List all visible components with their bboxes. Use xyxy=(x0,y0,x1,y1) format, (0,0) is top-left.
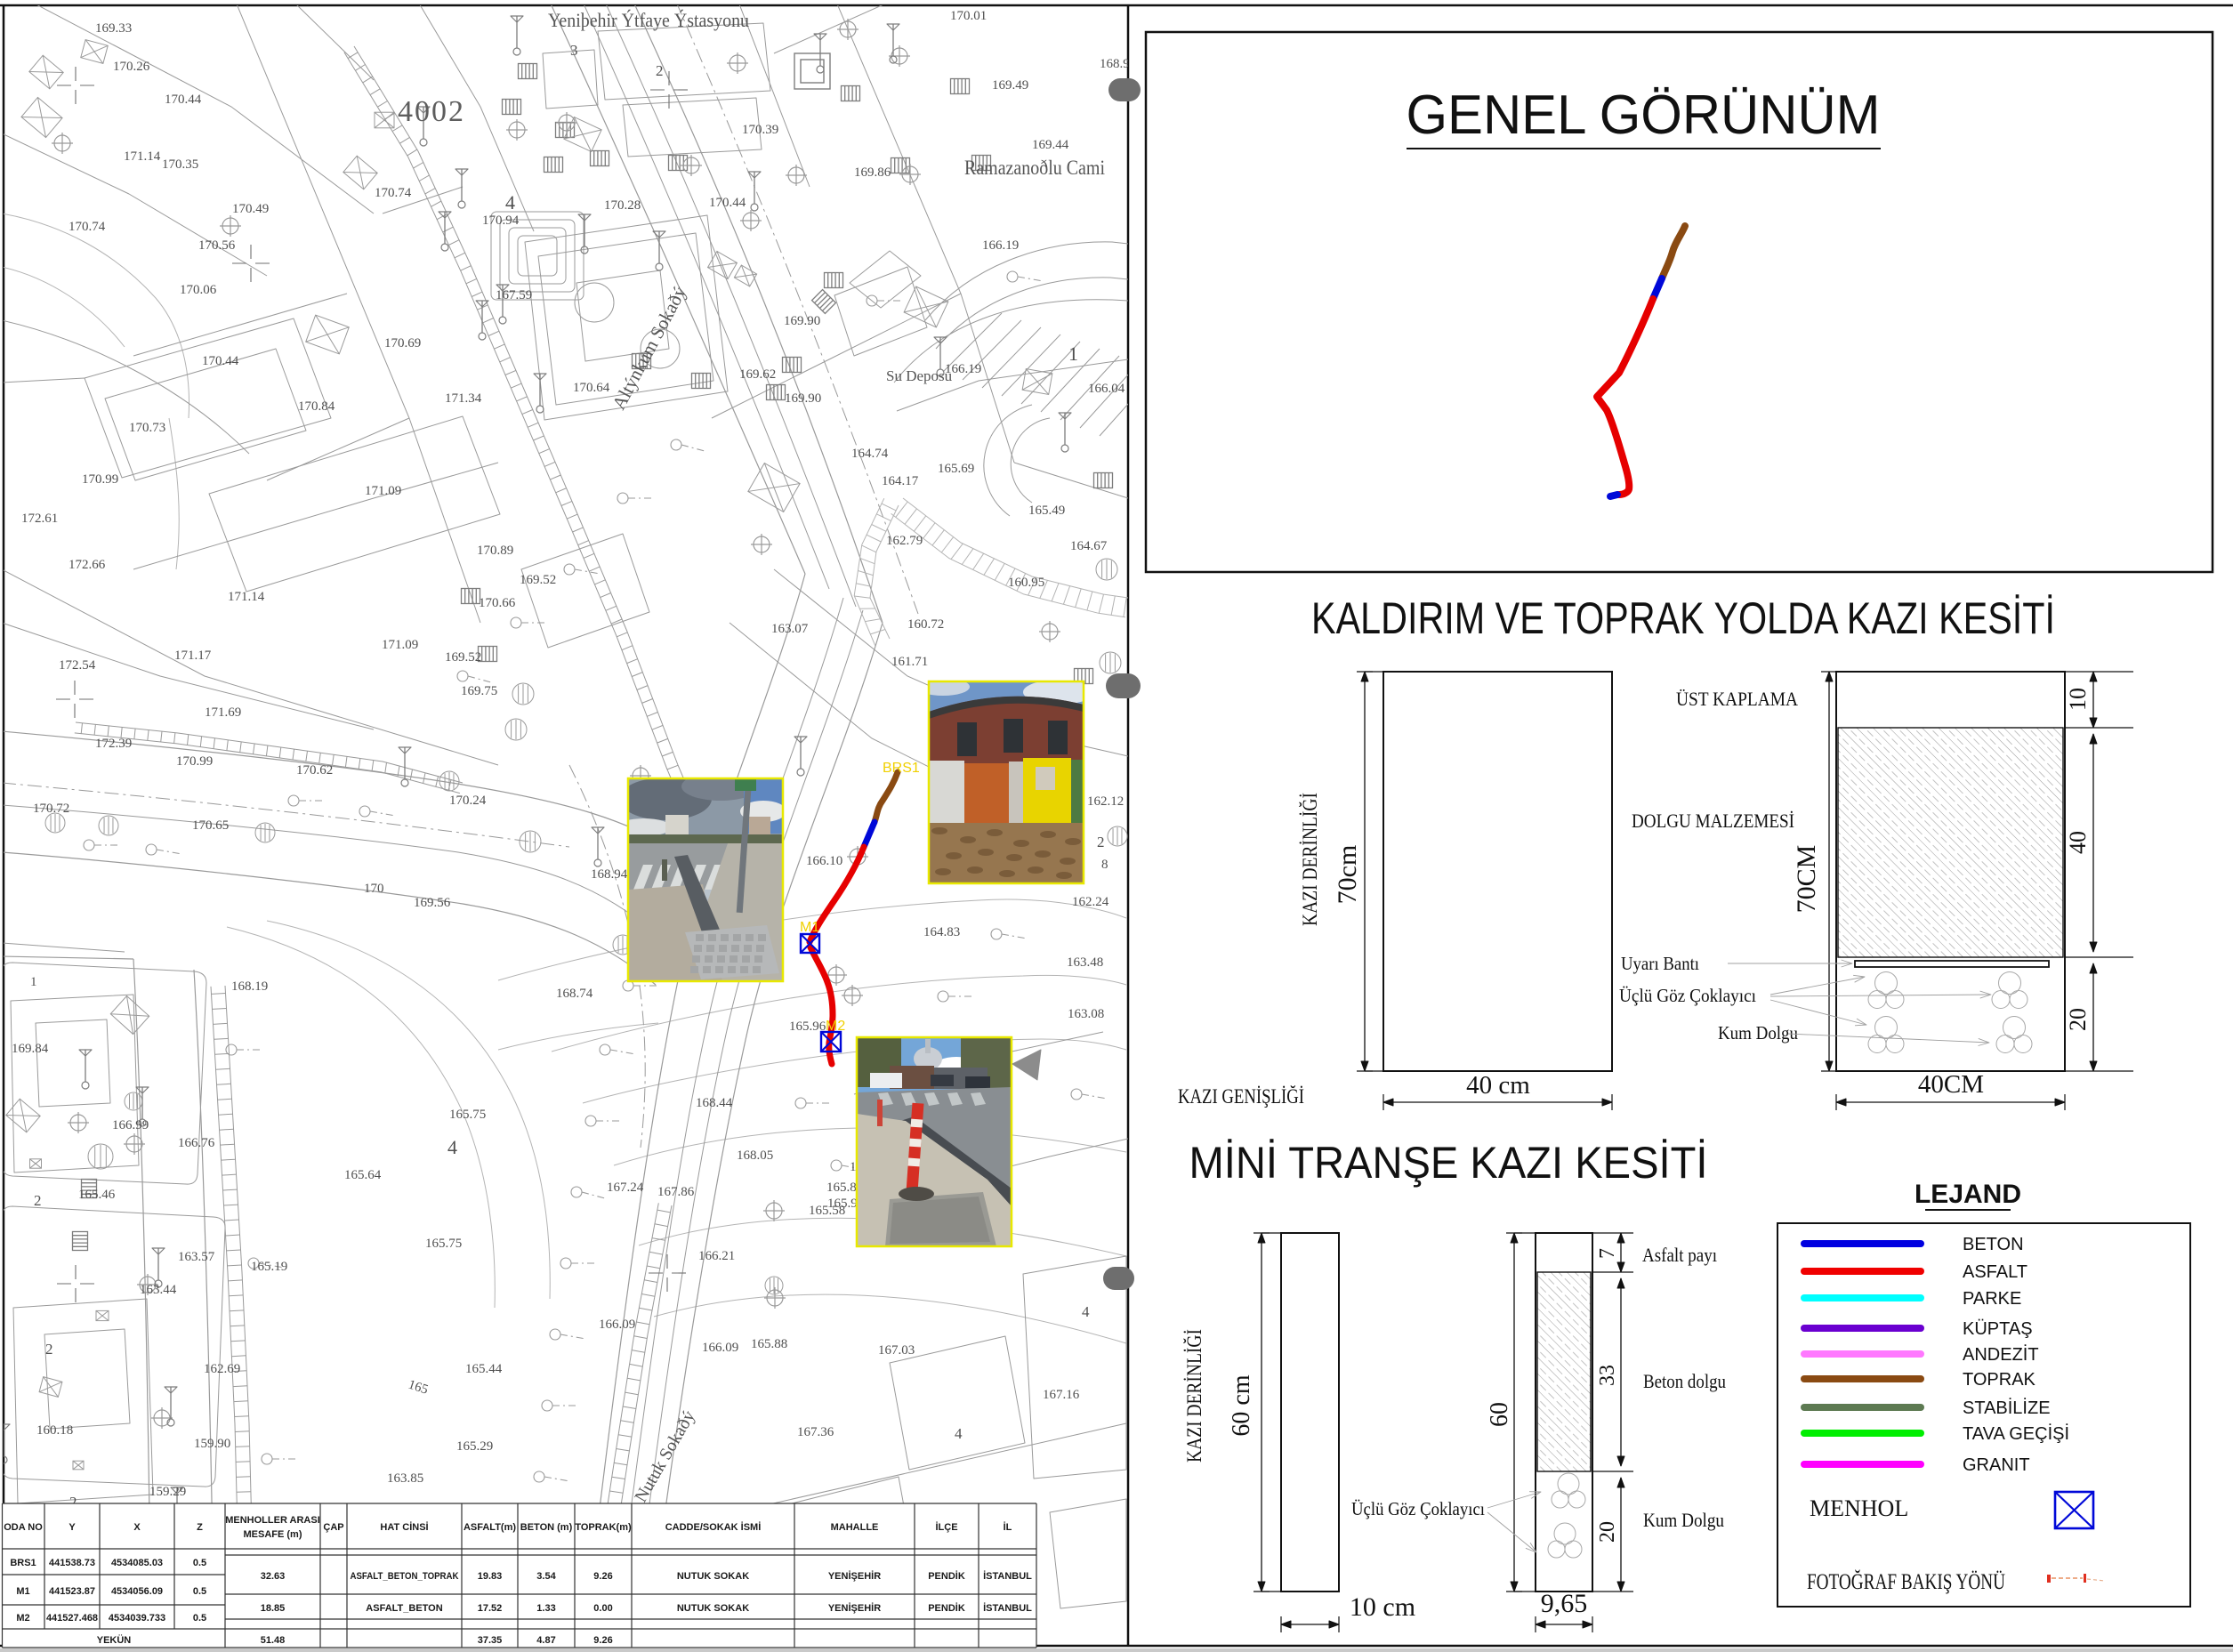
svg-text:17.52: 17.52 xyxy=(478,1603,503,1614)
svg-text:169.44: 169.44 xyxy=(1032,138,1069,152)
svg-text:MİNİ TRANŞE KAZI KESİTİ: MİNİ TRANŞE KAZI KESİTİ xyxy=(1189,1138,1708,1188)
svg-text:167.36: 167.36 xyxy=(797,1425,834,1439)
svg-text:170.72: 170.72 xyxy=(33,802,69,816)
svg-text:STABİLİZE: STABİLİZE xyxy=(1963,1398,2051,1418)
svg-text:169.52: 169.52 xyxy=(445,650,481,665)
svg-text:2: 2 xyxy=(45,1341,53,1358)
svg-text:169.49: 169.49 xyxy=(992,78,1028,93)
svg-text:165.64: 165.64 xyxy=(344,1168,382,1182)
svg-text:ODA NO: ODA NO xyxy=(4,1522,43,1533)
svg-text:9.26: 9.26 xyxy=(593,1635,612,1646)
svg-text:1.33: 1.33 xyxy=(536,1603,555,1614)
svg-text:KÜPTAŞ: KÜPTAŞ xyxy=(1963,1319,2033,1339)
svg-text:NUTUK SOKAK: NUTUK SOKAK xyxy=(677,1571,749,1582)
svg-text:163.85: 163.85 xyxy=(387,1471,423,1486)
svg-text:170.49: 170.49 xyxy=(232,202,269,216)
svg-text:0.5: 0.5 xyxy=(193,1558,206,1568)
svg-text:169.62: 169.62 xyxy=(739,367,776,382)
svg-text:DOLGU MALZEMESİ: DOLGU MALZEMESİ xyxy=(1632,810,1794,832)
svg-text:170.66: 170.66 xyxy=(479,596,516,610)
svg-text:163.57: 163.57 xyxy=(178,1250,215,1264)
svg-text:170.44: 170.44 xyxy=(202,354,239,368)
svg-text:162.12: 162.12 xyxy=(1087,794,1124,809)
svg-text:Z: Z xyxy=(197,1522,203,1533)
svg-text:9,65: 9,65 xyxy=(1541,1589,1588,1618)
svg-text:Ramazanoðlu Cami: Ramazanoðlu Cami xyxy=(964,157,1105,179)
svg-text:165.46: 165.46 xyxy=(78,1188,116,1202)
svg-text:441523.87: 441523.87 xyxy=(49,1586,95,1597)
svg-text:0.00: 0.00 xyxy=(593,1603,612,1614)
svg-text:167.03: 167.03 xyxy=(878,1343,915,1358)
svg-text:TAVA GEÇİŞİ: TAVA GEÇİŞİ xyxy=(1963,1423,2069,1444)
svg-text:164.67: 164.67 xyxy=(1070,539,1108,553)
svg-text:170.84: 170.84 xyxy=(298,399,335,414)
svg-text:GENEL GÖRÜNÜM: GENEL GÖRÜNÜM xyxy=(1407,85,1881,146)
svg-text:160.95: 160.95 xyxy=(1008,576,1044,590)
svg-text:NUTUK SOKAK: NUTUK SOKAK xyxy=(677,1603,749,1614)
svg-text:172.39: 172.39 xyxy=(95,737,132,751)
svg-text:165.44: 165.44 xyxy=(465,1362,503,1376)
svg-text:2: 2 xyxy=(34,1192,42,1209)
svg-text:YEKÜN: YEKÜN xyxy=(97,1634,132,1646)
svg-text:MESAFE (m): MESAFE (m) xyxy=(244,1529,302,1540)
svg-text:166.04: 166.04 xyxy=(1088,382,1125,396)
svg-text:PENDİK: PENDİK xyxy=(928,1570,965,1582)
svg-text:40CM: 40CM xyxy=(1918,1070,1984,1099)
svg-text:172.66: 172.66 xyxy=(69,558,106,572)
svg-text:170.39: 170.39 xyxy=(742,123,778,137)
svg-text:4.87: 4.87 xyxy=(536,1635,555,1646)
svg-text:YENİŞEHİR: YENİŞEHİR xyxy=(828,1602,881,1614)
svg-text:4: 4 xyxy=(1082,1303,1090,1320)
svg-text:441527.468: 441527.468 xyxy=(46,1613,98,1624)
svg-text:162.69: 162.69 xyxy=(204,1362,240,1376)
svg-text:Uyarı Bantı: Uyarı Bantı xyxy=(1621,953,1699,974)
svg-text:159.29: 159.29 xyxy=(149,1485,186,1499)
svg-text:18.85: 18.85 xyxy=(261,1603,286,1614)
svg-text:165.29: 165.29 xyxy=(456,1439,493,1454)
svg-text:40: 40 xyxy=(2065,831,2091,854)
svg-text:166.99: 166.99 xyxy=(112,1118,149,1132)
svg-text:60 cm: 60 cm xyxy=(1228,1374,1255,1436)
svg-text:10 cm: 10 cm xyxy=(1350,1592,1415,1622)
svg-text:3.54: 3.54 xyxy=(536,1571,556,1582)
svg-text:7: 7 xyxy=(1596,1248,1619,1259)
svg-text:Üçlü Göz Çoklayıcı: Üçlü Göz Çoklayıcı xyxy=(1351,1498,1485,1519)
svg-text:169.86: 169.86 xyxy=(854,165,891,180)
svg-text:167.16: 167.16 xyxy=(1043,1388,1080,1402)
svg-text:170: 170 xyxy=(364,882,384,896)
svg-text:4534039.733: 4534039.733 xyxy=(109,1613,165,1624)
svg-text:M2: M2 xyxy=(826,1019,845,1034)
svg-text:164.17: 164.17 xyxy=(882,474,919,488)
svg-text:163.07: 163.07 xyxy=(771,622,809,636)
svg-text:165.49: 165.49 xyxy=(1028,504,1065,518)
svg-text:169.33: 169.33 xyxy=(95,21,132,36)
svg-text:51.48: 51.48 xyxy=(261,1635,286,1646)
svg-text:4534085.03: 4534085.03 xyxy=(111,1558,163,1568)
svg-text:170.24: 170.24 xyxy=(449,794,487,808)
svg-text:10: 10 xyxy=(2065,688,2091,711)
svg-text:Kum Dolgu: Kum Dolgu xyxy=(1643,1509,1724,1531)
svg-text:70cm: 70cm xyxy=(1333,845,1362,905)
svg-text:M2: M2 xyxy=(16,1613,29,1624)
svg-text:Kum Dolgu: Kum Dolgu xyxy=(1718,1022,1798,1044)
svg-text:160.72: 160.72 xyxy=(907,617,944,632)
svg-text:X: X xyxy=(133,1522,141,1533)
svg-text:171.14: 171.14 xyxy=(124,149,161,164)
svg-text:441538.73: 441538.73 xyxy=(49,1558,95,1568)
svg-text:164.74: 164.74 xyxy=(851,447,889,461)
svg-text:MENHOLLER ARASI: MENHOLLER ARASI xyxy=(225,1515,320,1526)
svg-text:165.88: 165.88 xyxy=(751,1337,787,1351)
svg-text:20: 20 xyxy=(2065,1008,2091,1031)
svg-text:Y: Y xyxy=(69,1522,76,1533)
svg-text:ASFALT(m): ASFALT(m) xyxy=(464,1522,516,1533)
svg-text:171.69: 171.69 xyxy=(205,705,241,720)
svg-text:BRS1: BRS1 xyxy=(883,761,920,776)
svg-text:167.86: 167.86 xyxy=(657,1185,695,1199)
svg-text:169.52: 169.52 xyxy=(520,573,556,587)
svg-text:4534056.09: 4534056.09 xyxy=(111,1586,163,1597)
svg-text:165.19: 165.19 xyxy=(251,1260,287,1274)
svg-text:M1: M1 xyxy=(800,920,819,935)
svg-text:166.76: 166.76 xyxy=(178,1136,215,1150)
svg-text:163.08: 163.08 xyxy=(1068,1007,1104,1021)
svg-text:0.5: 0.5 xyxy=(193,1586,206,1597)
svg-text:168.19: 168.19 xyxy=(231,979,268,994)
svg-text:MAHALLE: MAHALLE xyxy=(831,1522,879,1533)
svg-text:170.26: 170.26 xyxy=(113,60,150,74)
svg-text:166.10: 166.10 xyxy=(806,854,842,868)
svg-text:Üçlü Göz Çoklayıcı: Üçlü Göz Çoklayıcı xyxy=(1619,985,1756,1006)
svg-text:ASFALT: ASFALT xyxy=(1963,1262,2027,1282)
svg-text:165.69: 165.69 xyxy=(938,462,974,476)
svg-text:166.09: 166.09 xyxy=(599,1318,635,1332)
svg-text:ASFALT_BETON_TOPRAK: ASFALT_BETON_TOPRAK xyxy=(351,1571,459,1582)
svg-text:MENHOL: MENHOL xyxy=(1810,1495,1908,1521)
svg-text:Beton dolgu: Beton dolgu xyxy=(1643,1370,1726,1392)
svg-text:160.18: 160.18 xyxy=(36,1423,73,1438)
svg-text:37.35: 37.35 xyxy=(478,1635,503,1646)
svg-text:170.94: 170.94 xyxy=(482,214,520,228)
svg-text:Asfalt payı: Asfalt payı xyxy=(1642,1244,1717,1266)
svg-text:FOTOĞRAF BAKIŞ YÖNÜ: FOTOĞRAF BAKIŞ YÖNÜ xyxy=(1807,1569,2005,1594)
svg-text:32.63: 32.63 xyxy=(261,1571,286,1582)
svg-text:167.24: 167.24 xyxy=(607,1181,644,1195)
svg-text:1: 1 xyxy=(30,975,37,989)
svg-text:YENİŞEHİR: YENİŞEHİR xyxy=(828,1570,881,1582)
svg-text:170.01: 170.01 xyxy=(950,9,987,23)
svg-text:169.90: 169.90 xyxy=(785,391,821,406)
svg-text:0.5: 0.5 xyxy=(193,1613,206,1624)
svg-text:19.83: 19.83 xyxy=(478,1571,503,1582)
svg-text:ANDEZİT: ANDEZİT xyxy=(1963,1344,2039,1365)
svg-text:170.35: 170.35 xyxy=(162,157,198,172)
svg-text:TOPRAK(m): TOPRAK(m) xyxy=(575,1522,632,1533)
svg-text:KAZI GENİŞLİĞİ: KAZI GENİŞLİĞİ xyxy=(1178,1085,1304,1108)
svg-text:ÇAP: ÇAP xyxy=(323,1522,343,1533)
svg-text:172.54: 172.54 xyxy=(59,658,96,673)
svg-text:8: 8 xyxy=(1101,858,1108,872)
svg-text:159.90: 159.90 xyxy=(194,1437,230,1451)
svg-text:170.56: 170.56 xyxy=(198,238,236,253)
svg-text:9.26: 9.26 xyxy=(593,1571,612,1582)
svg-text:60: 60 xyxy=(1486,1402,1513,1427)
svg-text:169.90: 169.90 xyxy=(784,314,820,328)
svg-text:166.19: 166.19 xyxy=(982,238,1019,253)
svg-text:170.99: 170.99 xyxy=(176,754,213,769)
svg-text:Su Deposu: Su Deposu xyxy=(886,367,953,384)
svg-text:PENDİK: PENDİK xyxy=(928,1602,965,1614)
svg-text:170.65: 170.65 xyxy=(192,818,229,833)
svg-text:165.75: 165.75 xyxy=(449,1108,486,1122)
svg-text:169.75: 169.75 xyxy=(461,684,497,698)
svg-text:170.74: 170.74 xyxy=(375,186,412,200)
svg-text:Yeniþehir Ýtfaye Ýstasyonu: Yeniþehir Ýtfaye Ýstasyonu xyxy=(548,9,749,31)
svg-text:3: 3 xyxy=(570,42,578,59)
svg-text:KALDIRIM VE TOPRAK YOLDA KAZI: KALDIRIM VE TOPRAK YOLDA KAZI KESİTİ xyxy=(1311,593,2055,643)
svg-text:HAT CİNSİ: HAT CİNSİ xyxy=(380,1521,428,1533)
svg-text:171.09: 171.09 xyxy=(365,484,401,498)
svg-text:170.28: 170.28 xyxy=(604,198,641,213)
svg-text:4: 4 xyxy=(505,191,515,214)
svg-text:İSTANBUL: İSTANBUL xyxy=(983,1602,1032,1614)
svg-text:168.44: 168.44 xyxy=(696,1096,733,1110)
svg-text:4: 4 xyxy=(955,1425,963,1442)
svg-text:168.05: 168.05 xyxy=(737,1148,773,1163)
svg-text:BETON (m): BETON (m) xyxy=(520,1522,573,1533)
svg-text:İLÇE: İLÇE xyxy=(935,1521,957,1533)
svg-text:170.69: 170.69 xyxy=(384,336,421,351)
svg-text:PARKE: PARKE xyxy=(1963,1289,2021,1309)
svg-text:170.44: 170.44 xyxy=(165,93,202,107)
svg-text:2: 2 xyxy=(1097,834,1105,850)
svg-text:170.74: 170.74 xyxy=(69,220,106,234)
svg-text:İSTANBUL: İSTANBUL xyxy=(983,1570,1032,1582)
svg-text:161.71: 161.71 xyxy=(891,655,928,669)
svg-text:2: 2 xyxy=(656,62,664,79)
svg-text:169.84: 169.84 xyxy=(12,1042,49,1056)
svg-text:166.21: 166.21 xyxy=(698,1249,735,1263)
svg-text:162.24: 162.24 xyxy=(1072,895,1109,909)
svg-text:171.09: 171.09 xyxy=(382,638,418,652)
svg-text:165.75: 165.75 xyxy=(425,1237,462,1251)
svg-text:70CM: 70CM xyxy=(1792,845,1821,914)
svg-text:1: 1 xyxy=(1068,342,1078,365)
svg-text:164.83: 164.83 xyxy=(923,925,960,939)
svg-text:171.17: 171.17 xyxy=(174,649,212,663)
svg-text:GRANIT: GRANIT xyxy=(1963,1455,2030,1475)
svg-text:163.44: 163.44 xyxy=(140,1283,177,1297)
svg-text:TOPRAK: TOPRAK xyxy=(1963,1370,2036,1390)
svg-text:ASFALT_BETON: ASFALT_BETON xyxy=(366,1603,442,1614)
svg-text:170.64: 170.64 xyxy=(573,381,610,395)
svg-text:BETON: BETON xyxy=(1963,1235,2024,1254)
svg-text:170.89: 170.89 xyxy=(477,544,513,558)
svg-text:M1: M1 xyxy=(16,1586,29,1597)
svg-text:BRS1: BRS1 xyxy=(10,1558,36,1568)
svg-text:İL: İL xyxy=(1004,1521,1012,1533)
svg-text:166.09: 166.09 xyxy=(702,1341,738,1355)
svg-text:162.79: 162.79 xyxy=(886,534,923,548)
svg-text:CADDE/SOKAK İSMİ: CADDE/SOKAK İSMİ xyxy=(665,1521,762,1533)
svg-text:LEJAND: LEJAND xyxy=(1915,1180,2021,1209)
svg-text:168.74: 168.74 xyxy=(556,987,593,1001)
svg-text:172.61: 172.61 xyxy=(21,512,58,526)
svg-text:170.06: 170.06 xyxy=(180,283,217,297)
svg-text:170.73: 170.73 xyxy=(129,421,165,435)
svg-text:170.99: 170.99 xyxy=(82,472,118,487)
svg-text:20: 20 xyxy=(1596,1521,1619,1543)
svg-text:170.44: 170.44 xyxy=(709,196,746,210)
svg-text:171.34: 171.34 xyxy=(445,391,482,406)
svg-text:ÜST KAPLAMA: ÜST KAPLAMA xyxy=(1676,688,1798,710)
svg-text:40 cm: 40 cm xyxy=(1466,1071,1530,1100)
svg-text:KAZI DERİNLİĞİ: KAZI DERİNLİĞİ xyxy=(1299,793,1321,926)
svg-text:4: 4 xyxy=(447,1136,457,1158)
svg-text:4002: 4002 xyxy=(398,95,465,128)
svg-text:KAZI DERİNLİĞİ: KAZI DERİNLİĞİ xyxy=(1183,1329,1205,1463)
svg-text:171.14: 171.14 xyxy=(228,590,265,604)
svg-text:168.94: 168.94 xyxy=(591,867,628,882)
svg-text:33: 33 xyxy=(1596,1365,1619,1386)
svg-text:170.62: 170.62 xyxy=(296,763,333,778)
svg-text:167.59: 167.59 xyxy=(496,288,532,302)
svg-text:169.56: 169.56 xyxy=(414,896,451,910)
svg-text:163.48: 163.48 xyxy=(1067,955,1103,970)
